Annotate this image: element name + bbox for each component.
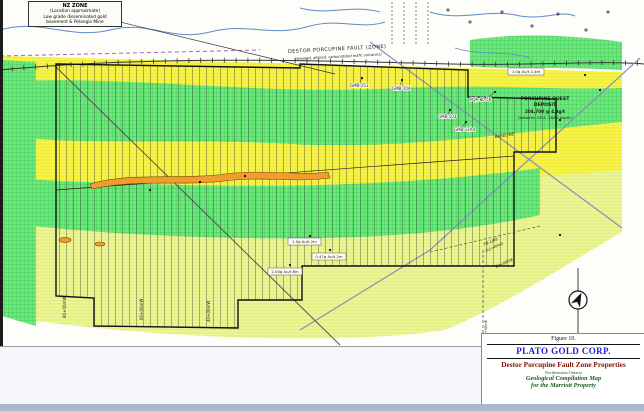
drillhole-label-gmb11a4: GMB-11A4 xyxy=(454,127,476,132)
map-title: Destor Porcupine Fault Zone Properties xyxy=(482,360,644,369)
drillhole-label-gmb151: GMB-151 xyxy=(350,83,369,88)
assay-label-1: 1.0g Au/t 2.4m xyxy=(512,69,541,74)
figure-number: Figure 10. xyxy=(482,336,644,342)
info-box-line3: basement & Pelangio Mine xyxy=(29,20,121,25)
assay-label-4: 2.00g Au/t 8m xyxy=(271,269,298,274)
deposit-name1: PORCUPINE QUEST xyxy=(521,96,571,102)
grid-station-40w: 40+00mW xyxy=(206,301,211,322)
nz-zone-info-box: NZ ZONE (Location approximate) Low grade… xyxy=(28,1,122,27)
drillhole-label-gmb103: GMB-103 xyxy=(438,114,457,119)
deposit-grade: 204,700 @ 4.3g/t xyxy=(525,109,565,114)
claim-post-lines xyxy=(392,2,428,44)
title-block: Figure 10. PLATO GOLD CORP. Destor Porcu… xyxy=(481,333,644,405)
drillhole-label-gmb10a: GMB-10A xyxy=(392,86,411,91)
title-rule-1 xyxy=(487,344,640,345)
map-subtitle-2: for the Marriott Property xyxy=(482,382,644,389)
title-rule-2 xyxy=(487,358,640,359)
unit-iron-basalt-west xyxy=(2,60,36,326)
grid-station-60w: 60+00mW xyxy=(139,299,144,320)
page-bottom-edge xyxy=(0,404,644,411)
map-subtitle-1: Geological Compilation Map xyxy=(482,375,644,382)
deposit-name2: DEPOSIT xyxy=(534,102,557,108)
assay-label-2: 1.0g Au/t 2m xyxy=(292,239,317,244)
drillhole-label-pqr: PQR-80-56 xyxy=(470,97,492,102)
north-arrow xyxy=(569,268,587,334)
claim-post-crosses xyxy=(446,8,610,32)
map-page: DESTOR PORCUPINE FAULT (ZONE) (sheared, … xyxy=(0,0,644,411)
company-name: PLATO GOLD CORP. xyxy=(482,346,644,356)
pipeline-dashed-line xyxy=(0,50,260,56)
page-left-edge xyxy=(0,0,3,347)
assay-label-3: 0.47g Au/t 2m xyxy=(315,254,342,259)
deposit-depth: (between -45 & -160m depth) xyxy=(518,116,572,120)
geology-map: DESTOR PORCUPINE FAULT (ZONE) (sheared, … xyxy=(0,0,644,346)
grid-station-80w: 80+00mW xyxy=(62,297,67,318)
